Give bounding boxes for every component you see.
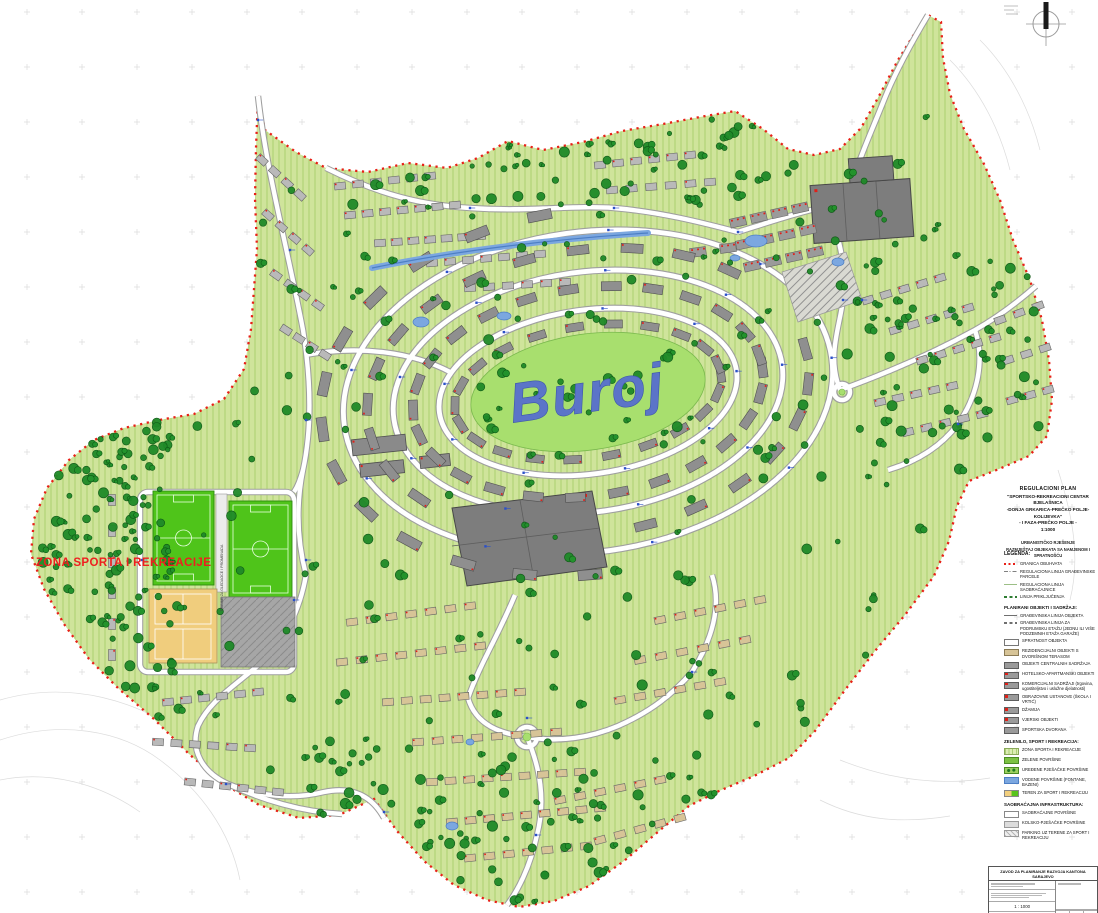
legend-item: VODENE POVRŠINE (FONTANE, BAZENI) (1004, 777, 1097, 788)
legend-item: KOLSKO-PJEŠAČKE POVRŠINE (1004, 820, 1097, 828)
stamp-field (989, 881, 1055, 890)
box-hatch-green-swatch (1004, 748, 1019, 755)
legend-item: PARKING UZ TERENE ZA SPORT I REKREACIJU (1004, 830, 1097, 841)
legend-item-label: UREĐENE PJEŠAČKE POVRŠINE (1022, 767, 1088, 772)
line-green-dashed-swatch (1004, 596, 1017, 597)
north-arrow (1004, 2, 1066, 46)
legend-item: HOTELSKO-APARTMANSKI OBJEKTI (1004, 671, 1097, 679)
legend-item: SAOBRAĆAJNE POVRŠINE (1004, 810, 1097, 818)
box-gray-red-swatch (1004, 682, 1019, 689)
box-lightgray-swatch (1004, 821, 1019, 828)
legend-item-label: VODENE POVRŠINE (FONTANE, BAZENI) (1022, 777, 1097, 788)
legend-item-label: REZIDENCIJALNI OBJEKTI S DVORIŠNOM TERAS… (1022, 648, 1097, 659)
legend-item: SPRATNOST OBJEKTA (1004, 638, 1097, 646)
legend-item-label: GRANICA OBUHVATA (1020, 561, 1062, 566)
legend-item: REGULACIONA LINIJA GRAĐEVINSKE PARCELE (1004, 569, 1097, 580)
box-tan-swatch (1004, 649, 1019, 656)
sport-zone-label: ZONA SPORTA I REKREACIJE (36, 557, 211, 569)
legend-item: GRAĐEVINSKA LINIJA OBJEKTA (1004, 613, 1097, 618)
title-line: -DONJA GRKARICA-PREČKO POLJE-KOLIJEVKA" (999, 507, 1097, 520)
legend-item-label: DŽAMIJA (1022, 707, 1040, 712)
legend-item: VJERSKI OBJEKTI (1004, 717, 1097, 725)
box-sport-swatch (1004, 790, 1019, 797)
box-green-trees-swatch (1004, 767, 1019, 774)
legend-item: REZIDENCIJALNI OBJEKTI S DVORIŠNOM TERAS… (1004, 648, 1097, 659)
box-white-swatch (1004, 811, 1019, 818)
legend-item: LINIJA PRIKLJUČENJA (1004, 594, 1097, 599)
line-gray-swatch (1004, 615, 1017, 616)
legend-item-label: PARKING UZ TERENE ZA SPORT I REKREACIJU (1022, 830, 1097, 841)
title-line: - I FAZA-PREČKO POLJE - (999, 520, 1097, 527)
title-block-stamp: ZAVOD ZA PLANIRANJE RAZVOJA KANTONA SARA… (988, 866, 1098, 913)
line-gray-dashed-swatch (1004, 622, 1017, 623)
box-gray-red-swatch (1004, 672, 1019, 679)
legend-item-label: GRAĐEVINSKA LINIJA OBJEKTA (1020, 613, 1083, 618)
legend-item-label: TEREN ZA SPORT I REKREACIJU (1022, 790, 1088, 795)
legend-item-label: ZONA SPORTA I REKREACIJE (1022, 747, 1081, 752)
legend-item-label: OBRAZOVNE USTANOVE (ŠKOLA I VRTIĆ) (1022, 694, 1097, 705)
legend-item: KOMERCIJALNI SADRŽAJI (trgovina, ugostit… (1004, 681, 1097, 692)
legend-item: OBJEKTI CENTRALNIH SADRŽAJA (1004, 661, 1097, 669)
title-line: 1:1000 (999, 527, 1097, 534)
legend-item: UREĐENE PJEŠAČKE POVRŠINE (1004, 767, 1097, 775)
box-gray-red-swatch (1004, 717, 1019, 724)
legend-heading: LEGENDA: (1004, 551, 1097, 557)
legend-item-label: SPORTSKA DVORANA (1022, 727, 1066, 732)
stamp-field (1056, 881, 1097, 910)
legend-item-label: KOLSKO-PJEŠAČKE POVRŠINE (1022, 820, 1085, 825)
box-gray-swatch (1004, 662, 1019, 669)
title-line: REGULACIONI PLAN (999, 486, 1097, 494)
legend-item-label: SAOBRAĆAJNE POVRŠINE (1022, 810, 1076, 815)
box-outline-swatch (1004, 639, 1019, 646)
legend-item: GRAĐEVINSKA LINIJA ZA PODRUMSKU ETAŽU (J… (1004, 620, 1097, 636)
stamp-field (989, 890, 1055, 901)
line-red-dotted-swatch (1004, 563, 1017, 565)
legend-section-header: SAOBRAĆAJNA INFRASTRUKTURA: (1004, 802, 1097, 807)
plan-title-block: REGULACIONI PLAN"SPORTSKO-REKREACIONI CE… (999, 486, 1097, 559)
legend-item: TEREN ZA SPORT I REKREACIJU (1004, 790, 1097, 798)
box-green-swatch (1004, 757, 1019, 764)
legend-item-label: KOMERCIJALNI SADRŽAJI (trgovina, ugostit… (1022, 681, 1097, 692)
line-dashdot-swatch (1004, 571, 1017, 572)
legend-item-label: LINIJA PRIKLJUČENJA (1020, 594, 1064, 599)
line-thin-swatch (1004, 584, 1017, 585)
box-gray-red-swatch (1004, 694, 1019, 701)
legend-item: ZELENE POVRŠINE (1004, 757, 1097, 765)
box-gray-swatch (1004, 727, 1019, 734)
box-hatch-light-swatch (1004, 830, 1019, 837)
box-gray-red-swatch (1004, 707, 1019, 714)
legend-item: ZONA SPORTA I REKREACIJE (1004, 747, 1097, 755)
legend-item-label: HOTELSKO-APARTMANSKI OBJEKTI (1022, 671, 1094, 676)
legend-item: DŽAMIJA (1004, 707, 1097, 715)
legend-item: OBRAZOVNE USTANOVE (ŠKOLA I VRTIĆ) (1004, 694, 1097, 705)
legend-section-header: PLANIRANI OBJEKTI I SADRŽAJI: (1004, 605, 1097, 610)
legend-item: SPORTSKA DVORANA (1004, 727, 1097, 735)
stamp-header: ZAVOD ZA PLANIRANJE RAZVOJA KANTONA SARA… (989, 867, 1097, 881)
legend-item-label: REGULACIONA LINIJA SAOBRAĆAJNICE (1020, 582, 1097, 593)
tribune-label: TRIBINE ZA GLEDAOCE I PROMENADA (220, 544, 224, 611)
stamp-scale: 1 : 1000 (989, 902, 1055, 912)
legend: LEGENDA: GRANICA OBUHVATAREGULACIONA LIN… (1004, 551, 1097, 843)
regulation-plan-screenshot: Buroj ZONA SPORTA I REKREACIJE TRIBINE Z… (0, 0, 1098, 913)
legend-item-label: OBJEKTI CENTRALNIH SADRŽAJA (1022, 661, 1090, 666)
legend-section-header: ZELENILO, SPORT I REKREACIJA: (1004, 739, 1097, 744)
legend-item: REGULACIONA LINIJA SAOBRAĆAJNICE (1004, 582, 1097, 593)
box-blue-swatch (1004, 777, 1019, 784)
legend-item-label: SPRATNOST OBJEKTA (1022, 638, 1067, 643)
title-line: "SPORTSKO-REKREACIONI CENTAR BJELAŠNICA (999, 494, 1097, 507)
legend-item-label: ZELENE POVRŠINE (1022, 757, 1061, 762)
master-plan-map: Buroj ZONA SPORTA I REKREACIJE TRIBINE Z… (0, 0, 1098, 913)
legend-item-label: VJERSKI OBJEKTI (1022, 717, 1058, 722)
legend-item-label: GRAĐEVINSKA LINIJA ZA PODRUMSKU ETAŽU (J… (1020, 620, 1097, 636)
legend-item-label: REGULACIONA LINIJA GRAĐEVINSKE PARCELE (1020, 569, 1097, 580)
legend-item: GRANICA OBUHVATA (1004, 561, 1097, 566)
